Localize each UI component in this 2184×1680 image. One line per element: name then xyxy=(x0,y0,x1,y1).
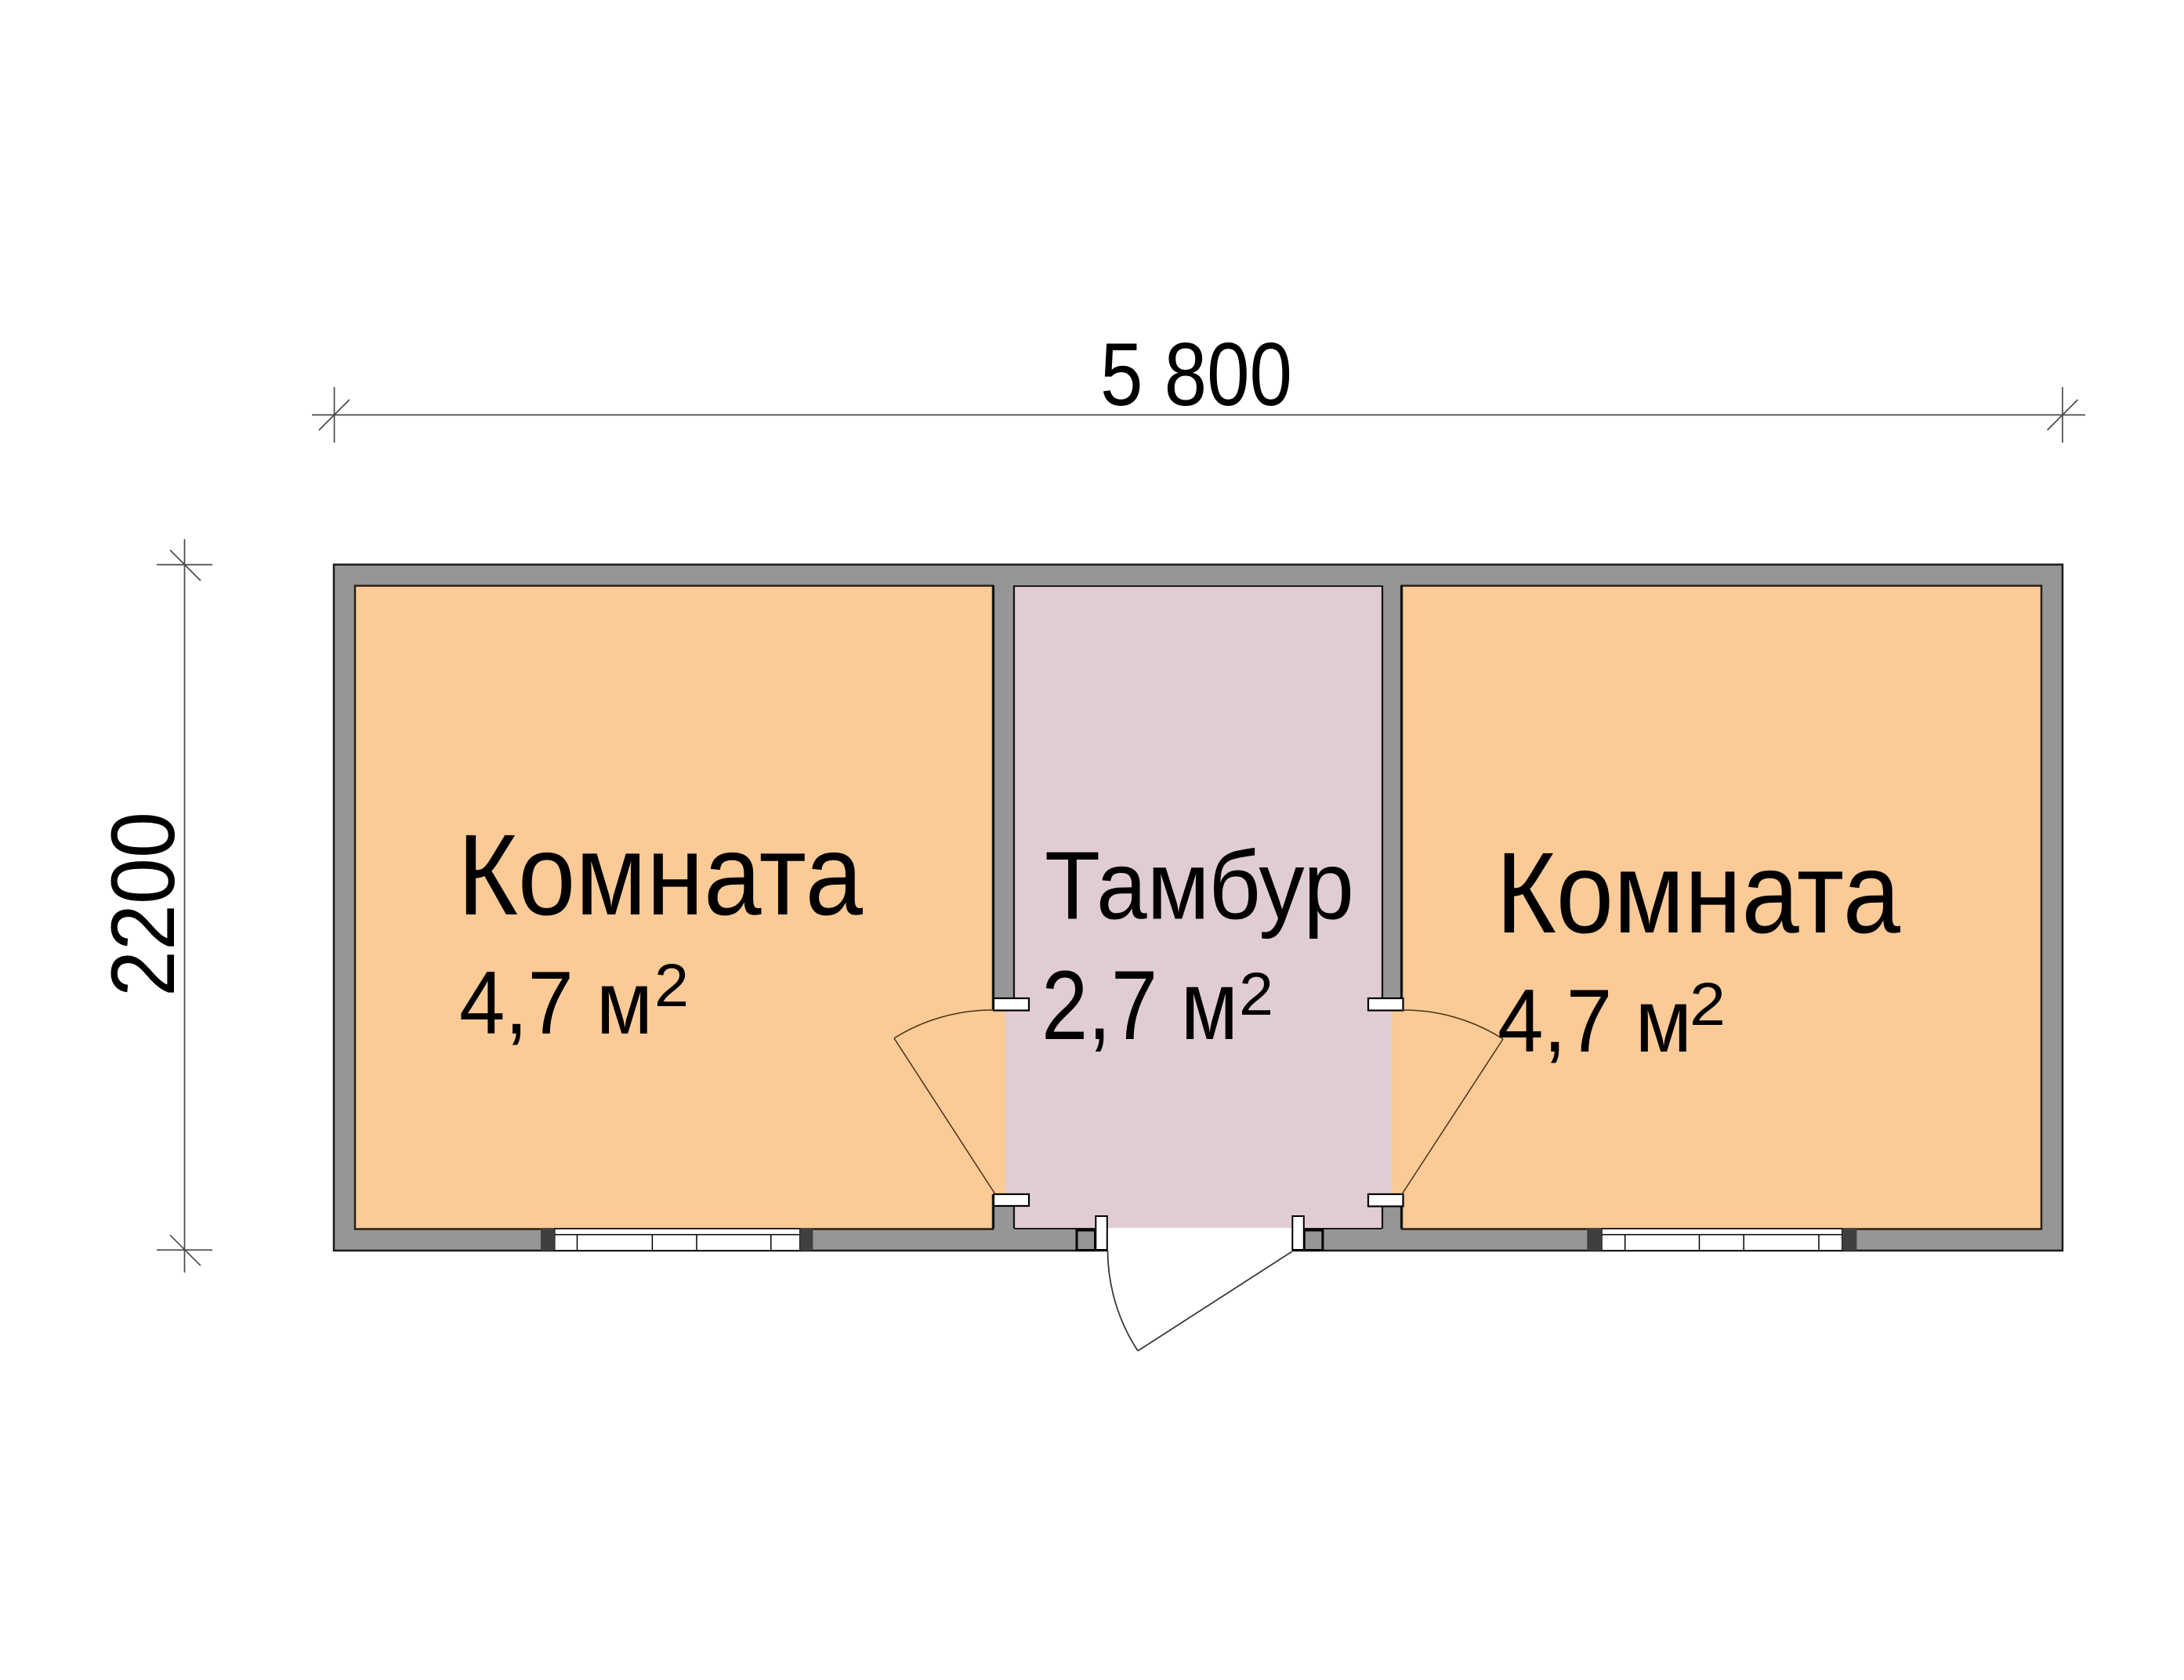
svg-text:Комната: Комната xyxy=(458,811,863,940)
svg-text:2: 2 xyxy=(1690,971,1726,1038)
svg-text:2: 2 xyxy=(1239,961,1273,1028)
svg-text:Комната: Комната xyxy=(1496,829,1900,958)
svg-text:2200: 2200 xyxy=(93,812,194,997)
svg-text:2,7 м: 2,7 м xyxy=(1041,951,1238,1060)
svg-text:4,7 м: 4,7 м xyxy=(1498,972,1692,1071)
svg-text:2: 2 xyxy=(654,952,689,1019)
svg-text:Тамбур: Тамбур xyxy=(1045,833,1354,940)
svg-text:4,7 м: 4,7 м xyxy=(459,954,653,1053)
svg-text:5 800: 5 800 xyxy=(1100,325,1292,425)
